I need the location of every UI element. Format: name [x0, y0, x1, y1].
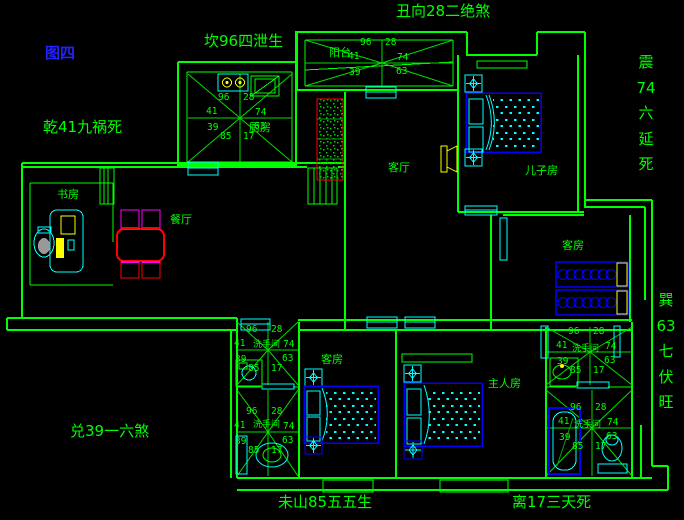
- star-number: 39: [559, 433, 570, 443]
- star-number: 63: [606, 432, 617, 442]
- room-label-balcony: 阳台: [329, 47, 351, 58]
- flying-star-chart-bath-left-upper: 96 28 41 74 39 63 85 17: [220, 312, 316, 388]
- star-number: 39: [235, 437, 246, 447]
- room-label-bathroom: 洗手间: [253, 341, 280, 350]
- study-door-louver: [100, 168, 114, 204]
- star-number: 28: [595, 403, 606, 413]
- door: [500, 218, 507, 260]
- room-label-bathroom: 洗手间: [253, 421, 280, 430]
- star-number: 17: [593, 366, 604, 376]
- flying-star-chart-kitchen: 96 28 41 74 39 63 85 17: [192, 80, 288, 156]
- planter-box: [317, 99, 343, 180]
- star-number: 39: [349, 68, 360, 78]
- star-number: 96: [570, 403, 581, 413]
- star-number: 96: [360, 38, 371, 48]
- star-number: 28: [271, 325, 282, 335]
- room-label-guest-right: 客房: [562, 240, 584, 251]
- window: [405, 317, 435, 328]
- star-number: 41: [234, 421, 245, 431]
- star-number: 39: [207, 123, 218, 133]
- annotation-south-left: 未山85五五生: [278, 495, 372, 510]
- star-number: 74: [255, 108, 266, 118]
- flying-star-chart-balcony: 96 28 41 74 39 63 85 17: [334, 25, 430, 101]
- ceiling-lamp-icon: [404, 365, 421, 382]
- star-number: 17: [271, 446, 282, 456]
- guest-beds: [556, 262, 628, 315]
- annotation-east-upper: 震74六延死: [634, 50, 658, 178]
- room-label-bathroom: 洗手间: [574, 421, 601, 430]
- star-number: 41: [234, 339, 245, 349]
- star-number: 74: [605, 342, 616, 352]
- annotation-south-right: 离17三天死: [512, 495, 591, 510]
- cad-floorplan-canvas: 96 28 41 74 39 63 85 17 96 28 41 74 39 6…: [0, 0, 684, 520]
- bed-son: [466, 93, 541, 152]
- star-number: 63: [396, 67, 407, 77]
- wall-tv-speaker: [441, 146, 457, 172]
- star-number: 74: [607, 418, 618, 428]
- dining-chairs: [121, 210, 160, 278]
- star-number: 96: [218, 93, 229, 103]
- room-label-son: 儿子房: [525, 165, 558, 176]
- star-number: 28: [593, 327, 604, 337]
- star-number: 74: [283, 422, 294, 432]
- room-label-dining: 餐厅: [170, 214, 192, 225]
- star-number: 96: [246, 407, 257, 417]
- star-number: 96: [568, 327, 579, 337]
- annotation-northwest: 乾41九祸死: [43, 120, 122, 135]
- star-number: 17: [595, 442, 606, 452]
- room-label-bathroom: 洗手间: [572, 345, 599, 354]
- window: [465, 206, 497, 215]
- star-number: 74: [283, 340, 294, 350]
- ceiling-lamp-icon: [465, 75, 482, 92]
- flying-star-chart-bath-left-lower: 96 28 41 74 39 63 85 17: [220, 394, 316, 470]
- star-number: 41: [556, 341, 567, 351]
- room-label-master: 主人房: [488, 378, 521, 389]
- star-number: 85: [572, 442, 583, 452]
- star-number: 96: [246, 325, 257, 335]
- room-label-guest-bottom: 客房: [321, 354, 343, 365]
- dining-table: [117, 229, 164, 261]
- star-number: 85: [570, 366, 581, 376]
- annotation-north: 坎96四泄生: [204, 34, 283, 49]
- annotation-west: 兑39一六煞: [70, 424, 149, 439]
- bed-master: [404, 383, 482, 446]
- star-number: 28: [385, 38, 396, 48]
- figure-label: 图四: [45, 46, 75, 61]
- star-number: 41: [558, 417, 569, 427]
- star-number: 63: [282, 354, 293, 364]
- star-number: 41: [206, 107, 217, 117]
- room-label-living: 客厅: [388, 162, 410, 173]
- window: [367, 317, 397, 328]
- room-label-kitchen: 厨房: [249, 122, 271, 133]
- star-number: 17: [271, 364, 282, 374]
- star-number: 85: [220, 132, 231, 142]
- study-desk: [50, 210, 83, 272]
- star-number: 63: [282, 436, 293, 446]
- star-number: 28: [243, 93, 254, 103]
- star-number: 28: [271, 407, 282, 417]
- star-number: 85: [248, 364, 259, 374]
- star-number: 74: [397, 53, 408, 63]
- star-number: 85: [248, 446, 259, 456]
- study-toilet: [34, 227, 54, 257]
- star-number: 39: [557, 357, 568, 367]
- room-label-study: 书房: [57, 189, 79, 200]
- star-number: 39: [235, 355, 246, 365]
- annotation-east-lower: 巽63七伏旺: [654, 288, 678, 416]
- shelf: [477, 61, 527, 68]
- star-number: 63: [604, 356, 615, 366]
- shelf: [402, 354, 472, 362]
- annotation-northeast: 丑向28二绝煞: [396, 4, 490, 19]
